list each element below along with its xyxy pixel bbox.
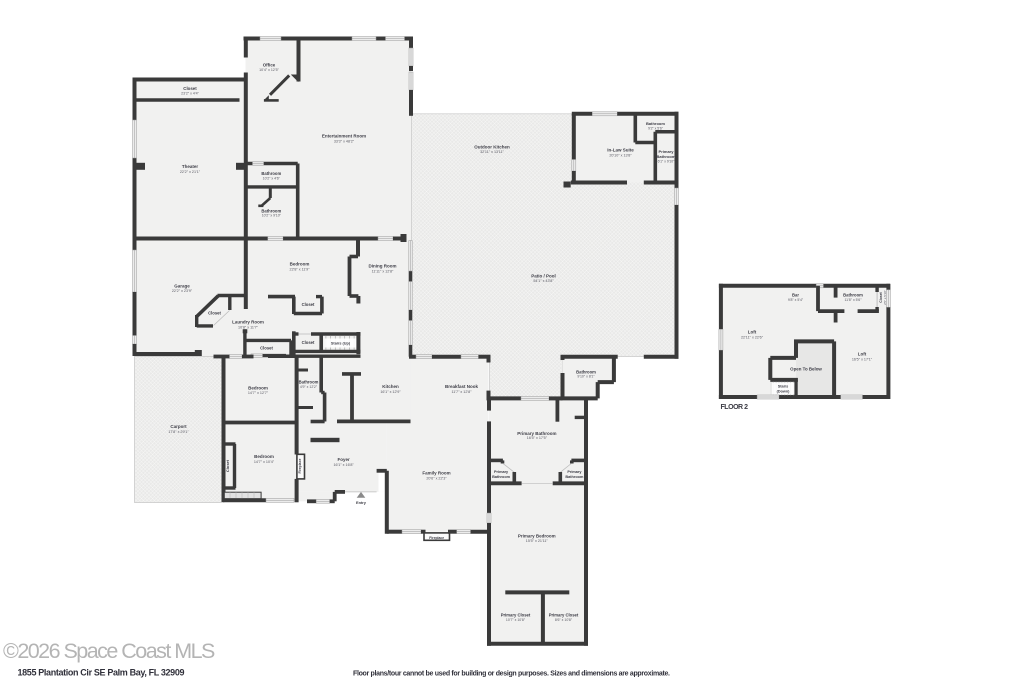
svg-text:In-Law Suite: In-Law Suite bbox=[607, 148, 634, 153]
svg-text:Bathroom: Bathroom bbox=[261, 171, 281, 176]
svg-text:Bedroom: Bedroom bbox=[248, 385, 268, 390]
svg-text:Bedroom: Bedroom bbox=[254, 454, 274, 459]
svg-text:Bedroom: Bedroom bbox=[290, 262, 310, 267]
svg-text:Primary: Primary bbox=[567, 470, 582, 474]
svg-text:Entry: Entry bbox=[356, 500, 367, 505]
svg-text:10'7" x 10'8": 10'7" x 10'8" bbox=[506, 618, 526, 622]
svg-text:33'3" x 48'2": 33'3" x 48'2" bbox=[334, 139, 355, 143]
svg-text:11'11" x 12'8": 11'11" x 12'8" bbox=[372, 269, 394, 273]
svg-text:©2026 Space Coast MLS: ©2026 Space Coast MLS bbox=[3, 639, 216, 663]
svg-text:22'2" x 23'9": 22'2" x 23'9" bbox=[172, 289, 193, 293]
svg-text:6'1" x 9'10": 6'1" x 9'10" bbox=[658, 160, 676, 164]
svg-text:16'1" x 16'8": 16'1" x 16'8" bbox=[333, 463, 354, 467]
svg-text:Bathroom: Bathroom bbox=[261, 208, 281, 213]
svg-text:22'2" x 21'1": 22'2" x 21'1" bbox=[180, 170, 201, 174]
svg-text:4'9" x 12'2": 4'9" x 12'2" bbox=[300, 385, 318, 389]
svg-text:2'5" x 5'10": 2'5" x 5'10" bbox=[883, 290, 887, 305]
svg-text:Closet: Closet bbox=[302, 340, 315, 345]
svg-text:Closet: Closet bbox=[183, 86, 197, 91]
svg-text:Bathroom: Bathroom bbox=[646, 121, 665, 126]
svg-text:16'5" x 17'5": 16'5" x 17'5" bbox=[527, 436, 548, 440]
svg-text:9'2" x 5'6": 9'2" x 5'6" bbox=[648, 126, 664, 130]
svg-text:16'1" x 12'9": 16'1" x 12'9" bbox=[380, 390, 401, 394]
svg-text:Dining Room: Dining Room bbox=[369, 264, 397, 269]
svg-text:Closet: Closet bbox=[260, 346, 273, 351]
svg-text:Bathroom: Bathroom bbox=[565, 475, 584, 479]
svg-text:Closet: Closet bbox=[208, 311, 221, 316]
svg-text:FLOOR 2: FLOOR 2 bbox=[721, 404, 749, 411]
svg-text:Family Room: Family Room bbox=[422, 471, 450, 476]
svg-text:22'11" x 22'6": 22'11" x 22'6" bbox=[741, 335, 764, 339]
svg-text:Primary Bedroom: Primary Bedroom bbox=[518, 534, 556, 539]
svg-text:Closet: Closet bbox=[302, 302, 315, 307]
svg-text:14'7" x 12'7": 14'7" x 12'7" bbox=[248, 391, 269, 395]
svg-text:Office: Office bbox=[263, 62, 276, 67]
svg-text:Bathroom: Bathroom bbox=[657, 154, 676, 159]
svg-text:Foyer: Foyer bbox=[337, 457, 350, 462]
svg-text:Bathroom: Bathroom bbox=[299, 380, 319, 385]
svg-text:Bathroom: Bathroom bbox=[843, 293, 863, 298]
svg-text:Garage: Garage bbox=[174, 283, 190, 288]
svg-text:Laundry Room: Laundry Room bbox=[232, 320, 264, 325]
svg-text:Theater: Theater bbox=[182, 164, 199, 169]
svg-text:17'8" x 29'1": 17'8" x 29'1" bbox=[168, 430, 189, 434]
svg-text:Open To Below: Open To Below bbox=[790, 367, 822, 372]
svg-text:Floor plans/tour cannot be use: Floor plans/tour cannot be used for buil… bbox=[353, 670, 670, 677]
svg-text:Stairs (Up): Stairs (Up) bbox=[331, 342, 351, 346]
svg-text:Primary Closet: Primary Closet bbox=[501, 613, 531, 618]
svg-text:Kitchen: Kitchen bbox=[382, 384, 399, 389]
svg-text:Primary Closet: Primary Closet bbox=[549, 613, 579, 618]
svg-text:9'10" x 8'1": 9'10" x 8'1" bbox=[577, 375, 595, 379]
svg-text:(Down): (Down) bbox=[777, 389, 791, 393]
svg-text:10'4" x 12'5": 10'4" x 12'5" bbox=[259, 68, 279, 72]
svg-text:Fireplace: Fireplace bbox=[298, 459, 302, 474]
svg-text:15'5" x 21'11": 15'5" x 21'11" bbox=[526, 539, 549, 543]
svg-text:Entertainment Room: Entertainment Room bbox=[322, 134, 366, 139]
svg-text:Loft: Loft bbox=[858, 352, 867, 357]
svg-text:22'8" x 11'9": 22'8" x 11'9" bbox=[290, 267, 311, 271]
svg-text:8'6" x 10'8": 8'6" x 10'8" bbox=[555, 618, 573, 622]
svg-text:11'7" x 12'8": 11'7" x 12'8" bbox=[452, 390, 473, 394]
svg-text:10'2" x 4'6": 10'2" x 4'6" bbox=[263, 176, 281, 180]
svg-text:10'2" x 9'10": 10'2" x 9'10" bbox=[262, 214, 282, 218]
svg-text:54'1" x 43'8": 54'1" x 43'8" bbox=[533, 279, 554, 283]
svg-text:32'11" x 13'11": 32'11" x 13'11" bbox=[480, 150, 504, 154]
svg-text:9'8" x 5'4": 9'8" x 5'4" bbox=[788, 298, 804, 302]
svg-text:Patio / Pool: Patio / Pool bbox=[531, 273, 556, 278]
svg-text:Outdoor Kitchen: Outdoor Kitchen bbox=[474, 144, 510, 149]
svg-text:Fireplace: Fireplace bbox=[429, 536, 444, 540]
svg-text:20'10" x 13'8": 20'10" x 13'8" bbox=[609, 153, 632, 157]
svg-text:11'8" x 5'6": 11'8" x 5'6" bbox=[845, 298, 863, 302]
svg-text:20'6" x 22'3": 20'6" x 22'3" bbox=[426, 477, 447, 481]
svg-text:Closet: Closet bbox=[225, 459, 230, 472]
svg-text:Bathroom: Bathroom bbox=[492, 475, 511, 479]
svg-text:Primary: Primary bbox=[494, 470, 509, 474]
svg-text:Stairs: Stairs bbox=[778, 385, 789, 389]
svg-text:14'7" x 10'4": 14'7" x 10'4" bbox=[254, 460, 275, 464]
svg-text:10'8" x 11'7": 10'8" x 11'7" bbox=[238, 325, 259, 329]
svg-text:Carport: Carport bbox=[170, 424, 187, 429]
svg-text:Breakfast Nook: Breakfast Nook bbox=[445, 384, 479, 389]
svg-text:1855 Plantation Cir SE Palm Ba: 1855 Plantation Cir SE Palm Bay, FL 3290… bbox=[18, 667, 185, 677]
svg-text:23'2" x 4'4": 23'2" x 4'4" bbox=[181, 92, 199, 96]
svg-text:Bar: Bar bbox=[792, 293, 799, 298]
svg-text:Loft: Loft bbox=[748, 330, 757, 335]
svg-text:16'5" x 17'1": 16'5" x 17'1" bbox=[852, 357, 873, 361]
